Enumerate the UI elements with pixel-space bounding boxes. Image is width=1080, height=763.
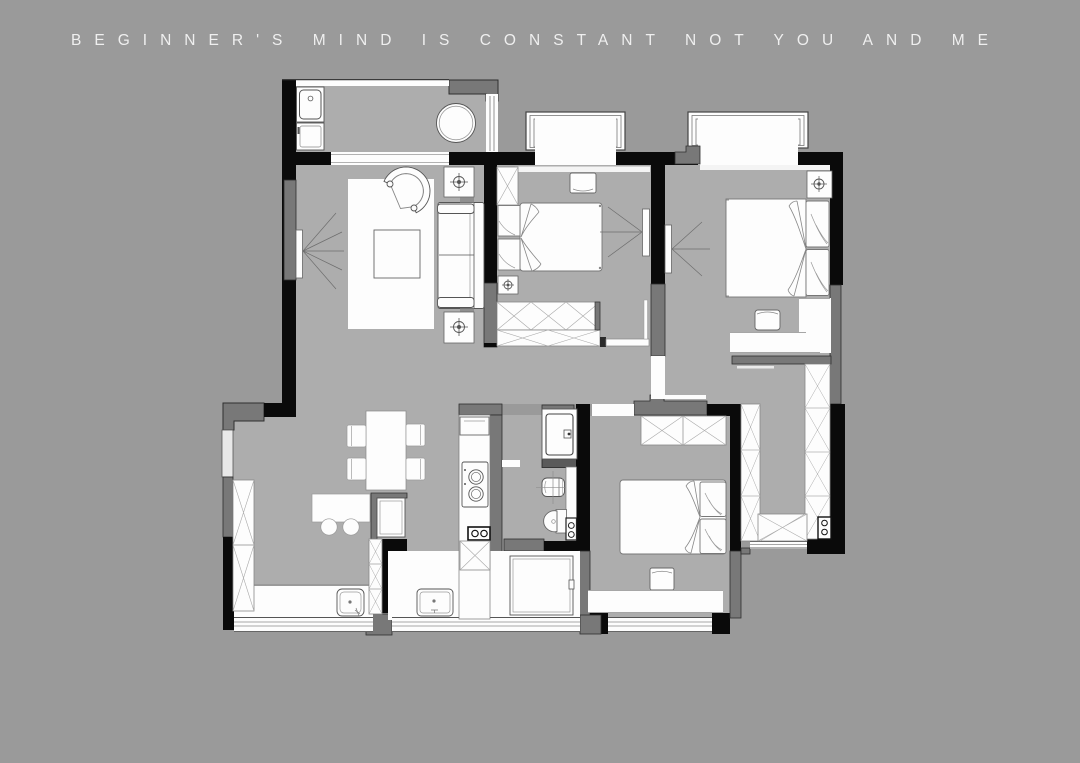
svg-text:BEGINNER'S MIND IS CONSTANT NO: BEGINNER'S MIND IS CONSTANT NOT YOU AND … — [71, 32, 997, 49]
